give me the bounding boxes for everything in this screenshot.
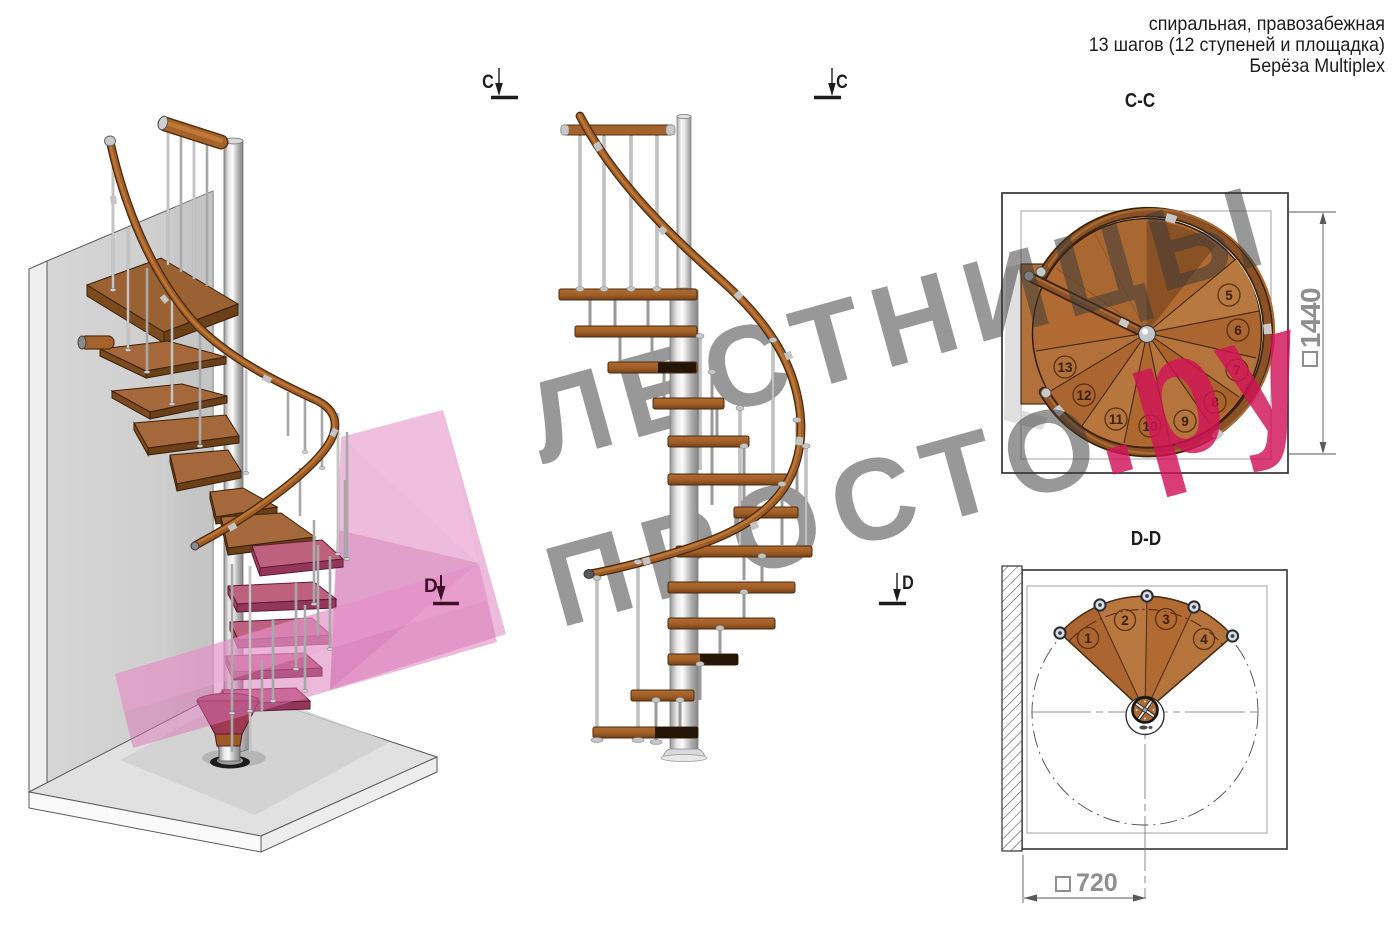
svg-text:Берёза Multiplex: Берёза Multiplex — [1249, 54, 1385, 76]
svg-text:C: C — [836, 71, 848, 93]
svg-text:2: 2 — [1121, 613, 1129, 628]
svg-text:D-D: D-D — [1131, 527, 1161, 550]
svg-text:13: 13 — [1057, 360, 1073, 375]
svg-text:C-C: C-C — [1125, 89, 1155, 112]
svg-text:1: 1 — [1084, 631, 1092, 646]
svg-text:D: D — [424, 576, 438, 597]
svg-text:D: D — [902, 572, 914, 594]
svg-text:3: 3 — [1162, 612, 1170, 627]
svg-text:C: C — [482, 71, 494, 93]
svg-text:спиральная, правозабежная: спиральная, правозабежная — [1149, 12, 1385, 34]
svg-text:1440: 1440 — [1295, 288, 1326, 348]
svg-text:4: 4 — [1200, 632, 1208, 647]
svg-text:720: 720 — [1076, 869, 1118, 897]
svg-text:13 шагов (12 ступеней и площад: 13 шагов (12 ступеней и площадка) — [1089, 33, 1385, 55]
